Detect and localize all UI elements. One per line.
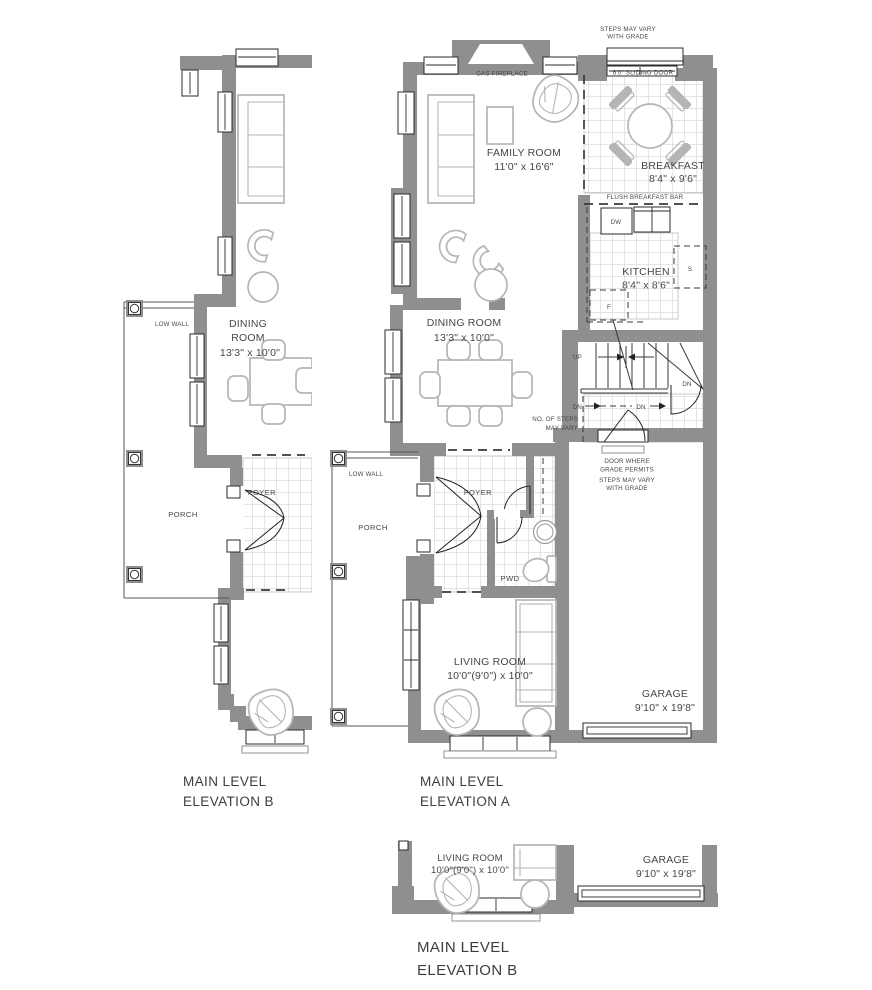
room-dims-garage: 9'10" x 19'8" — [636, 868, 696, 880]
plan-title: MAIN LEVEL — [420, 774, 504, 789]
steps-note: STEPS MAY VARY — [600, 26, 656, 33]
room-label-kitchen: KITCHEN — [622, 266, 670, 278]
porch-post — [126, 300, 143, 317]
room-dims-living: 10'0"(9'0") x 10'0" — [447, 670, 533, 682]
low-wall-label: LOW WALL — [155, 321, 189, 328]
porch-label: PORCH — [358, 523, 387, 532]
room-label-living: LIVING ROOM — [454, 656, 526, 668]
room-dims-dining: 13'3" x 10'0" — [220, 347, 280, 359]
grade-steps-note: WITH GRADE — [606, 485, 648, 492]
plan-elevation-b-bottom: LIVING ROOM 10'0"(9'0") x 10'0" GARAGE 9… — [392, 841, 718, 921]
steps-vary-note: MAY VARY — [546, 425, 578, 432]
garage-door — [583, 723, 691, 738]
stoop — [607, 48, 683, 65]
fridge-label: F — [607, 304, 611, 311]
round-table — [475, 269, 507, 301]
plan-title: MAIN LEVEL — [183, 774, 267, 789]
plan-b-left-title: MAIN LEVEL ELEVATION B — [183, 774, 274, 809]
bowl-chair — [244, 226, 273, 262]
pwd-label: PWD — [501, 574, 520, 583]
foyer-label: FOYER — [464, 488, 492, 497]
foyer-tiles — [243, 458, 312, 592]
bay-window — [450, 736, 550, 751]
armchair — [524, 68, 587, 131]
door-grade-note: GRADE PERMITS — [600, 467, 654, 474]
steps-vary-note: NO. OF STEPS — [532, 416, 578, 423]
room-label-dining: DINING — [229, 318, 267, 330]
grade-steps-note: STEPS MAY VARY — [599, 477, 655, 484]
garage-door — [578, 886, 704, 901]
round-table — [523, 708, 551, 736]
room-dims-kitchen: 8'4" x 8'6" — [622, 280, 670, 292]
dining-set — [420, 340, 532, 426]
door-grade-note: DOOR WHERE — [604, 458, 649, 465]
round-table — [248, 272, 278, 302]
porch-outline — [124, 300, 230, 598]
dn-label: DN — [573, 404, 582, 411]
gas-fireplace-label: GAS FIREPLACE — [476, 71, 528, 78]
porch-post — [330, 708, 347, 725]
room-dims-dining: 13'3" x 10'0" — [434, 332, 494, 344]
foyer-label: FOYER — [248, 488, 276, 497]
plan-title: ELEVATION A — [420, 794, 510, 809]
plan-title: ELEVATION B — [183, 794, 274, 809]
room-label-garage: GARAGE — [643, 854, 689, 866]
room-label-dining2: ROOM — [231, 332, 264, 344]
floorplan-sheet: DINING ROOM 13'3" x 10'0" LOW WALL PORCH… — [0, 0, 872, 990]
sliding-door-label: 6'0" SLIDING DOOR — [613, 70, 674, 77]
sink-label: S — [688, 266, 692, 273]
plan-elevation-a: STEPS MAY VARY WITH GRADE GAS FIREPLACE … — [330, 26, 717, 758]
room-label-garage: GARAGE — [642, 688, 688, 700]
low-wall-label: LOW WALL — [349, 471, 383, 478]
porch-post — [126, 450, 143, 467]
plan-b-bottom-title: MAIN LEVEL ELEVATION B — [417, 939, 518, 979]
porch-post — [330, 450, 347, 467]
room-label-living: LIVING ROOM — [437, 853, 503, 864]
plan-title: ELEVATION B — [417, 962, 518, 979]
porch-label: PORCH — [168, 510, 197, 519]
room-label-dining: DINING ROOM — [427, 317, 502, 329]
bowl-chair — [435, 226, 466, 263]
flush-bar-label: FLUSH BREAKFAST BAR — [607, 194, 684, 201]
floorplan-drawing: DINING ROOM 13'3" x 10'0" LOW WALL PORCH… — [0, 0, 872, 990]
media-shelf — [516, 600, 556, 706]
plan-title: MAIN LEVEL — [417, 939, 509, 956]
sofa — [428, 95, 474, 203]
room-dims-living: 10'0"(9'0") x 10'0" — [431, 865, 509, 876]
porch-post — [330, 563, 347, 580]
dn-label: DN — [682, 381, 691, 388]
dn-label: DN — [636, 404, 645, 411]
room-dims-family: 11'0" x 16'6" — [494, 161, 553, 173]
plan-elevation-b-left: DINING ROOM 13'3" x 10'0" LOW WALL PORCH… — [124, 49, 316, 753]
round-table — [521, 880, 549, 908]
room-dims-breakfast: 8'4" x 9'6" — [649, 173, 697, 185]
up-label: UP — [573, 354, 582, 361]
room-label-breakfast: BREAKFAST — [641, 160, 705, 172]
side-table — [487, 107, 513, 144]
dw-label: DW — [611, 219, 622, 226]
plan-a-title: MAIN LEVEL ELEVATION A — [420, 774, 510, 809]
sofa — [238, 95, 284, 203]
room-dims-garage: 9'10" x 19'8" — [635, 702, 695, 714]
steps-note: WITH GRADE — [607, 34, 649, 41]
room-label-family: FAMILY ROOM — [487, 147, 561, 159]
porch-post — [126, 566, 143, 583]
